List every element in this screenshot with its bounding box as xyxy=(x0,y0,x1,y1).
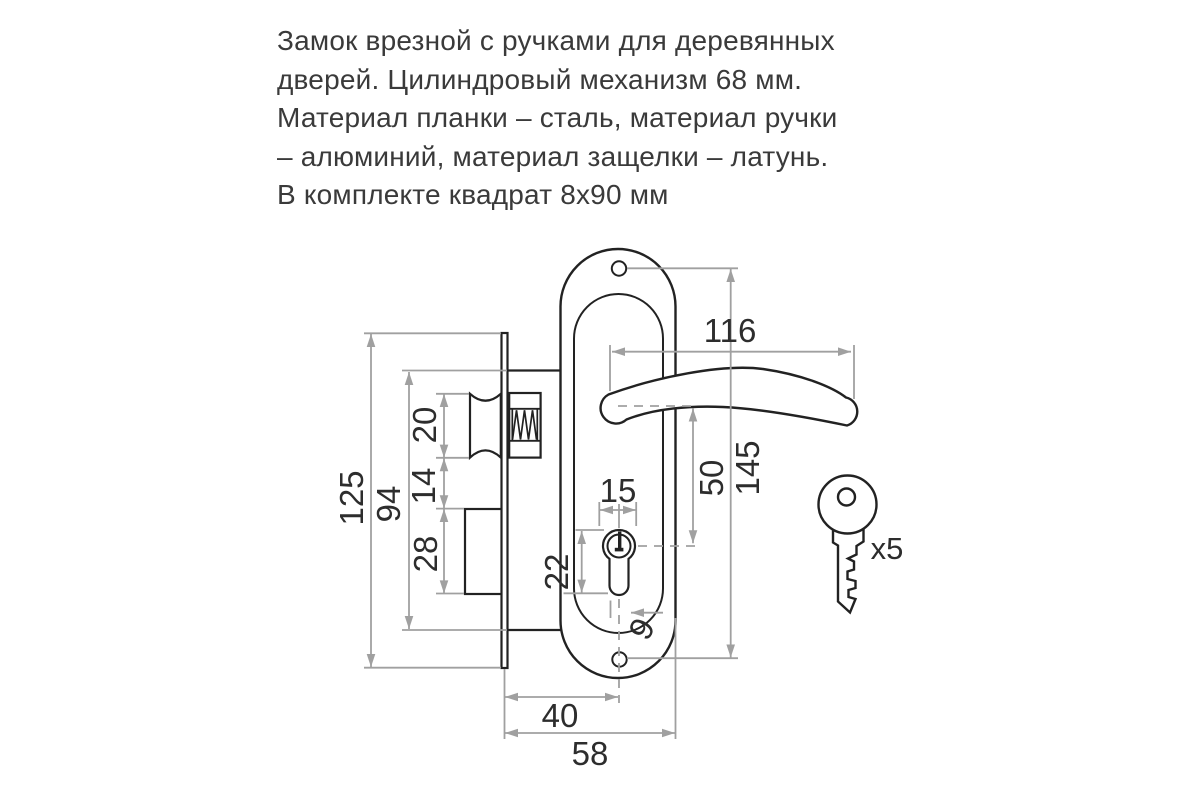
key-icon xyxy=(819,476,877,613)
product-diagram: Замок врезной с ручками для деревянных д… xyxy=(0,0,1200,800)
description-line: – алюминий, материал защелки – латунь. xyxy=(277,138,977,177)
screw-hole-top xyxy=(612,261,626,275)
dim-label-latch-height: 20 xyxy=(406,407,444,444)
latch-spring xyxy=(509,393,540,458)
description-line: дверей. Цилиндровый механизм 68 мм. xyxy=(277,61,977,100)
mortise-lock-geometry xyxy=(465,249,877,678)
dim-label-hole-spacing: 145 xyxy=(729,440,767,495)
dim-label-deadbolt-height: 28 xyxy=(407,536,445,573)
faceplate xyxy=(502,333,508,668)
dim-label-backset: 40 xyxy=(542,697,579,735)
deadbolt xyxy=(465,509,502,594)
dim-label-keyhole-height: 22 xyxy=(538,554,576,591)
escutcheon-plate xyxy=(561,249,676,678)
dim-label-cylinder-width: 15 xyxy=(600,472,637,510)
dim-label-latch-gap: 14 xyxy=(405,468,443,505)
dim-label-handle-to-cylinder: 50 xyxy=(693,460,731,497)
description-line: Материал планки – сталь, материал ручки xyxy=(277,99,977,138)
description-line: В комплекте квадрат 8х90 мм xyxy=(277,176,977,215)
latch-bolt xyxy=(470,394,501,458)
dim-label-overall-height: 125 xyxy=(333,470,371,525)
dim-label-body-depth: 58 xyxy=(572,735,609,773)
product-description: Замок врезной с ручками для деревянных д… xyxy=(277,22,977,215)
dim-label-handle-length: 116 xyxy=(704,312,757,350)
description-line: Замок врезной с ручками для деревянных xyxy=(277,22,977,61)
dim-label-body-height: 94 xyxy=(370,486,408,523)
key-count-label: x5 xyxy=(871,531,904,567)
